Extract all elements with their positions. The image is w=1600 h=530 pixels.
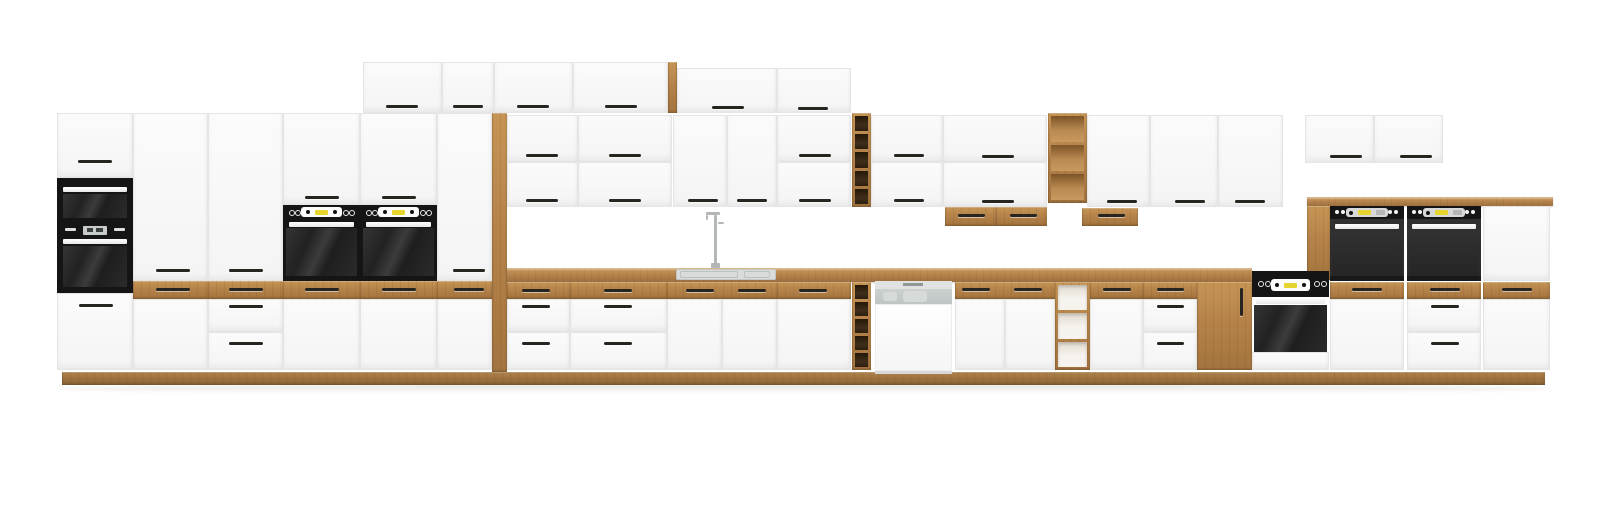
- top-cabinet-3-handle: [517, 105, 549, 108]
- base-drawers-2-oak-handle: [604, 289, 632, 292]
- oak-pantry-door-handle: [1240, 288, 1243, 316]
- base-drawers-2-d2-handle: [604, 342, 632, 345]
- tall-unit-1-bottom-door-handle: [79, 304, 113, 307]
- wall-cab-4-upper-handle: [894, 154, 924, 157]
- wall-oven-1: [1330, 206, 1404, 281]
- sink-base-oak-drawer-1-handle: [686, 289, 714, 292]
- base-cab-5-oak-drawer-handle: [1103, 288, 1131, 291]
- wall-cab-2-lower-handle: [609, 199, 641, 202]
- oven-tower-2-top-door-handle: [382, 196, 416, 199]
- floor-shadow: [55, 384, 1550, 394]
- base-drawers-3-oak-handle: [1157, 288, 1184, 291]
- oak-side-panel-right: [1307, 206, 1330, 280]
- right-tall-door-upper: [1483, 206, 1550, 281]
- right-lower-door-2: [1483, 299, 1550, 370]
- base-drawers-3-d2: [1143, 332, 1197, 370]
- wall-cab-sink-right: [727, 115, 777, 207]
- base-drawers-2-d1: [570, 299, 667, 332]
- base-drawers-2-d1-handle: [604, 305, 632, 308]
- wall-cab-1-lower-handle: [526, 199, 558, 202]
- oak-top-edge: [668, 62, 677, 113]
- base-cab-3-oak-drawer-handle: [799, 289, 827, 292]
- top-cabinet-6-handle: [798, 107, 828, 110]
- right-oak-drawer-3-handle: [1502, 288, 1532, 291]
- wall-cab-6: [1087, 115, 1150, 207]
- oven-tower-2-lower-door: [360, 299, 437, 370]
- tall-unit-3-door: [208, 113, 283, 281]
- tall-unit-1-top-door-handle: [78, 160, 112, 163]
- wall-cab-1-upper-handle: [526, 154, 558, 157]
- wall-cab-3-lower-handle: [799, 199, 831, 202]
- wall-cab-sink-left: [673, 115, 727, 207]
- base-drawers-1-d1-handle: [522, 305, 550, 308]
- right-lower-door-1: [1330, 299, 1404, 370]
- oven-tower-1-oven: [283, 205, 360, 281]
- tall-unit-2-door: [133, 113, 208, 281]
- oven-tower-2-oak-drawer-handle: [382, 288, 416, 291]
- tall-unit-6-lower-door: [437, 299, 492, 370]
- oven-tower-2-top-door: [360, 113, 437, 205]
- right-oak-drawer-2-handle: [1430, 288, 1460, 291]
- built-in-oven-left: [57, 223, 133, 293]
- wall-cab-7-handle: [1175, 200, 1205, 203]
- wall-cab-8-handle: [1235, 200, 1265, 203]
- right-counter-top: [1307, 197, 1553, 206]
- tall-unit-3-drawer-2-handle: [229, 342, 263, 345]
- tall-unit-3-door-handle: [229, 269, 263, 272]
- wall-right-cab-1-handle: [1330, 155, 1362, 158]
- sink-base-door-left: [667, 299, 722, 370]
- wall-cab-5-upper-handle: [982, 155, 1014, 158]
- built-in-microwave: [57, 178, 133, 223]
- tall-unit-3-oak-drawer-handle: [229, 288, 263, 291]
- base-drawers-1-oak-handle: [522, 289, 550, 292]
- oak-side-panel-left: [492, 113, 507, 372]
- base-oven: [1252, 271, 1329, 370]
- wall-open-shelf: [1048, 113, 1087, 203]
- tall-unit-3-drawer-1-handle: [229, 305, 263, 308]
- right-drawer-d1: [1407, 299, 1481, 332]
- base-cab-4-oak-drawer-2-handle: [1014, 288, 1042, 291]
- sink-base-oak-drawer-2-handle: [738, 289, 766, 292]
- wall-cab-6-handle: [1107, 200, 1137, 203]
- top-cabinet-5-handle: [712, 106, 744, 109]
- faucet: [706, 212, 730, 268]
- under-cabinet-box-2-handle: [1010, 214, 1037, 217]
- wall-cab-3-upper-handle: [799, 154, 831, 157]
- right-drawer-d2: [1407, 332, 1481, 370]
- tall-unit-2-lower-door: [133, 299, 208, 370]
- base-drawers-1-d2: [507, 332, 570, 370]
- base-drawers-3-d1-handle: [1157, 305, 1184, 308]
- oven-tower-1-top-door: [283, 113, 360, 205]
- under-cabinet-box-3: [1082, 208, 1138, 226]
- top-cabinet-1-handle: [386, 105, 418, 108]
- wall-cab-sink-left-handle: [688, 199, 718, 202]
- base-cab-5-door: [1090, 299, 1143, 370]
- tall-unit-1-top-door: [57, 113, 133, 178]
- wall-cab-sink-right-handle: [737, 199, 767, 202]
- under-cabinet-box-1-handle: [958, 214, 985, 217]
- base-cab-4-door-left: [955, 299, 1005, 370]
- base-wine-rack: [852, 282, 871, 370]
- base-drawers-3-d2-handle: [1157, 342, 1184, 345]
- oven-tower-1-top-door-handle: [305, 196, 339, 199]
- oak-pantry-door: [1197, 282, 1252, 370]
- plinth: [62, 372, 1545, 385]
- dishwasher: [875, 281, 952, 374]
- base-drawers-3-d1: [1143, 299, 1197, 332]
- countertop: [507, 268, 1252, 282]
- tall-unit-2-oak-drawer-handle: [156, 288, 190, 291]
- oven-tower-1-lower-door: [283, 299, 360, 370]
- oven-tower-2-oven: [360, 205, 437, 281]
- top-cabinet-4-handle: [605, 105, 637, 108]
- right-oak-drawer-1-handle: [1352, 288, 1382, 291]
- under-cabinet-box-3-handle: [1098, 214, 1125, 217]
- base-cab-4-oak-drawer-1-handle: [962, 288, 990, 291]
- wall-right-cab-2-handle: [1400, 155, 1432, 158]
- base-open-shelf: [1055, 282, 1090, 370]
- base-drawers-1-d2-handle: [522, 342, 550, 345]
- wall-oven-2: [1407, 206, 1481, 281]
- tall-unit-6-door: [437, 113, 492, 281]
- sink-base-door-right: [722, 299, 777, 370]
- tall-unit-3-drawer-2: [208, 332, 283, 370]
- right-drawer-d1-handle: [1431, 305, 1459, 308]
- tall-unit-3-drawer-1: [208, 299, 283, 332]
- base-cab-3-door: [777, 299, 851, 370]
- tall-unit-2-door-handle: [156, 269, 190, 272]
- right-drawer-d2-handle: [1431, 342, 1459, 345]
- top-cabinet-2-handle: [453, 105, 483, 108]
- wall-cab-7: [1150, 115, 1218, 207]
- wall-cab-5-lower-handle: [982, 200, 1014, 203]
- wall-wine-rack: [852, 113, 871, 207]
- sink: [676, 269, 776, 280]
- base-drawers-1-d1: [507, 299, 570, 332]
- tall-unit-6-oak-drawer-handle: [454, 288, 484, 291]
- wall-cab-4-lower-handle: [894, 199, 924, 202]
- base-cab-4-door-right: [1005, 299, 1055, 370]
- kitchen-cabinet-set-render: [0, 0, 1600, 530]
- tall-unit-6-door-handle: [453, 269, 485, 272]
- oven-tower-1-oak-drawer-handle: [305, 288, 339, 291]
- wall-cab-8: [1218, 115, 1283, 207]
- base-drawers-2-d2: [570, 332, 667, 370]
- wall-cab-2-upper-handle: [609, 154, 641, 157]
